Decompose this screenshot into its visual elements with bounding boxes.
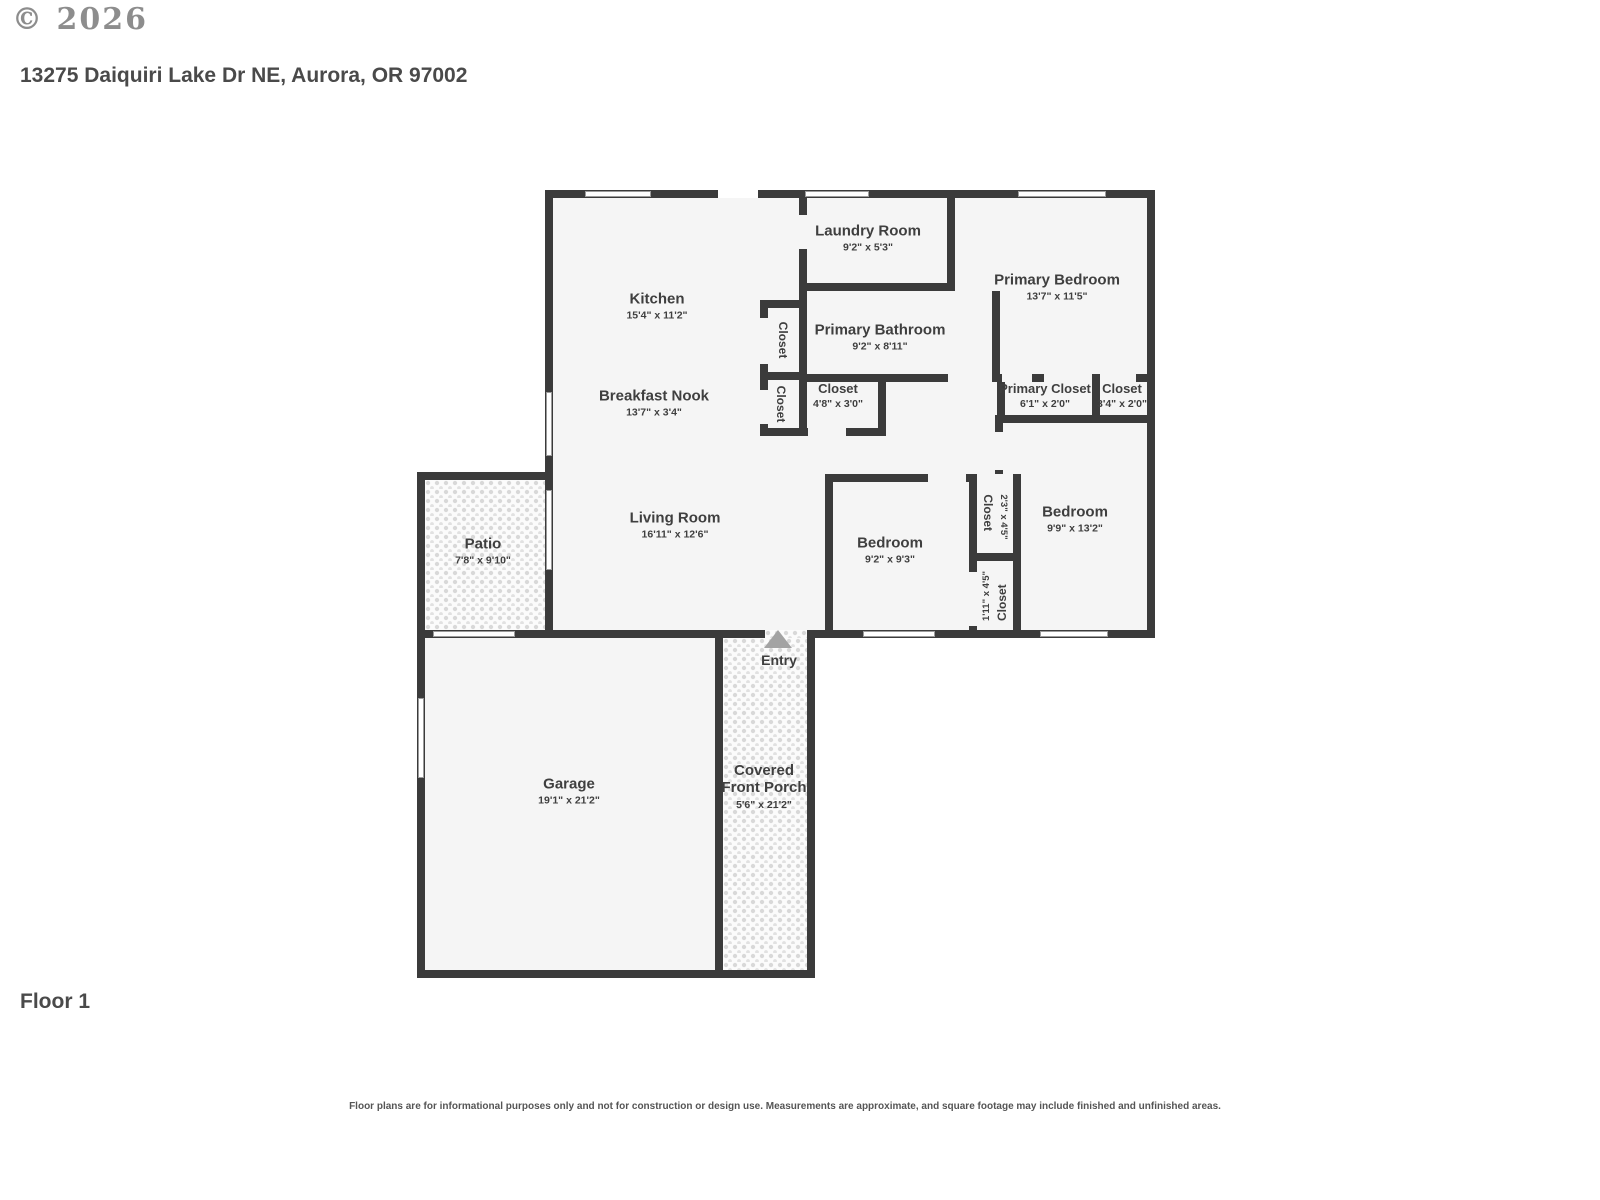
door-opening [799, 215, 807, 249]
room-label-patio: Patio 7'8" x 9'10" [455, 535, 511, 566]
wall [969, 553, 1021, 561]
window [1018, 191, 1106, 197]
room-label-entry: Entry [761, 652, 797, 668]
door-opening [995, 432, 1003, 470]
page-title: 13275 Daiquiri Lake Dr NE, Aurora, OR 97… [20, 64, 467, 88]
wall [992, 291, 1000, 382]
wall [417, 472, 553, 480]
floor-number-label: Floor 1 [20, 990, 90, 1014]
wall [825, 474, 928, 482]
door-opening [928, 474, 966, 482]
door-opening [760, 318, 768, 364]
sliding-door [546, 490, 552, 570]
window [718, 190, 758, 198]
window [418, 698, 424, 778]
room-label-closet-small: Closet 3'4" x 2'0" [1097, 382, 1147, 410]
floor-plan-page: © 2026 13275 Daiquiri Lake Dr NE, Aurora… [0, 0, 1600, 1200]
room-label-garage: Garage 19'1" x 21'2" [538, 775, 600, 806]
room-label-bedroom-right: Bedroom 9'9" x 13'2" [1042, 503, 1108, 534]
wall [807, 283, 955, 291]
wall [760, 372, 807, 380]
window [546, 392, 552, 456]
wall [825, 474, 833, 638]
door-opening [977, 474, 1013, 482]
wall [1147, 190, 1155, 638]
room-label-closet-111: Closet 1'11" x 4'5" [981, 571, 1009, 621]
wall [947, 198, 955, 291]
wall [417, 970, 815, 978]
wall [878, 382, 886, 436]
room-label-primary-bedroom: Primary Bedroom 13'7" x 11'5" [994, 271, 1120, 302]
room-label-closet-hall-lower: Closet [774, 386, 788, 423]
room-label-primary-closet: Primary Closet 6'1" x 2'0" [999, 382, 1091, 410]
window [585, 191, 651, 197]
room-label-bedroom-mid: Bedroom 9'2" x 9'3" [857, 534, 923, 565]
door-opening [969, 572, 977, 626]
room-label-porch: Covered Front Porch 5'6" x 21'2" [717, 762, 811, 811]
room-label-closet-hall-upper: Closet [776, 322, 790, 359]
entry-arrow-icon [764, 630, 792, 648]
room-label-closet-23: Closet 2'3" x 4'5" [981, 494, 1009, 539]
window [1040, 631, 1108, 637]
room-label-breakfast-nook: Breakfast Nook 13'7" x 3'4" [599, 387, 709, 418]
disclaimer-text: Floor plans are for informational purpos… [0, 1101, 1570, 1112]
room-label-closet-hall: Closet 4'8" x 3'0" [813, 382, 863, 410]
door-opening [808, 428, 846, 436]
window [805, 191, 869, 197]
room-label-laundry: Laundry Room 9'2" x 5'3" [815, 222, 921, 253]
wall [997, 415, 1155, 423]
room-label-living-room: Living Room 16'11" x 12'6" [630, 509, 721, 540]
door-opening [760, 390, 768, 424]
door-opening [948, 374, 992, 382]
window [863, 631, 935, 637]
room-label-primary-bathroom: Primary Bathroom 9'2" x 8'11" [815, 321, 946, 352]
copyright-watermark: © 2026 [12, 2, 148, 37]
window [433, 631, 515, 637]
room-label-kitchen: Kitchen 15'4" x 11'2" [626, 290, 687, 321]
